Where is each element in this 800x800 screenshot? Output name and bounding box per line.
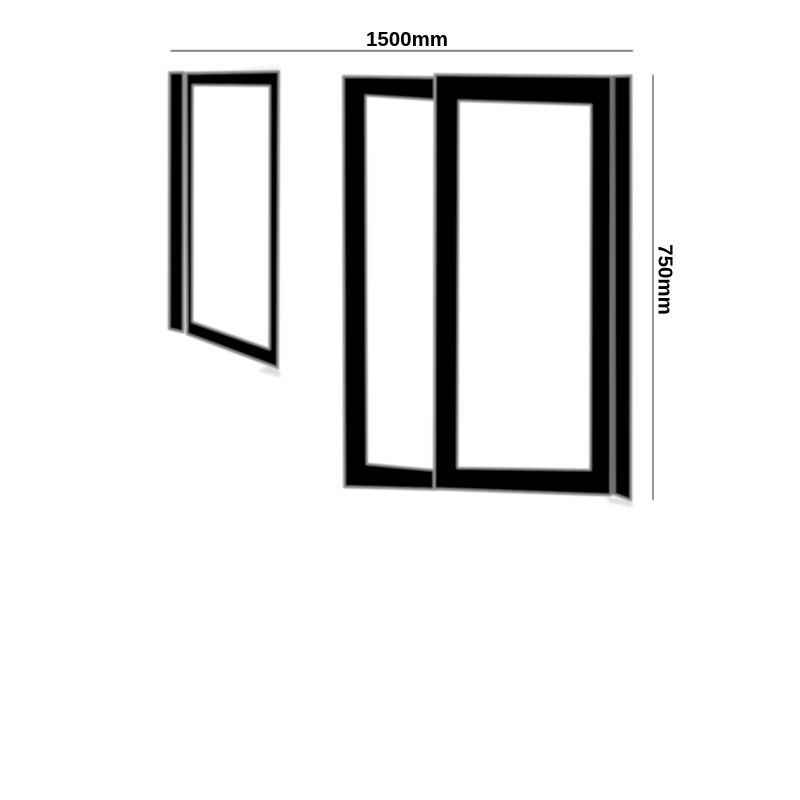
svg-text:750mm: 750mm [653,244,676,315]
svg-text:1500mm: 1500mm [366,28,448,51]
